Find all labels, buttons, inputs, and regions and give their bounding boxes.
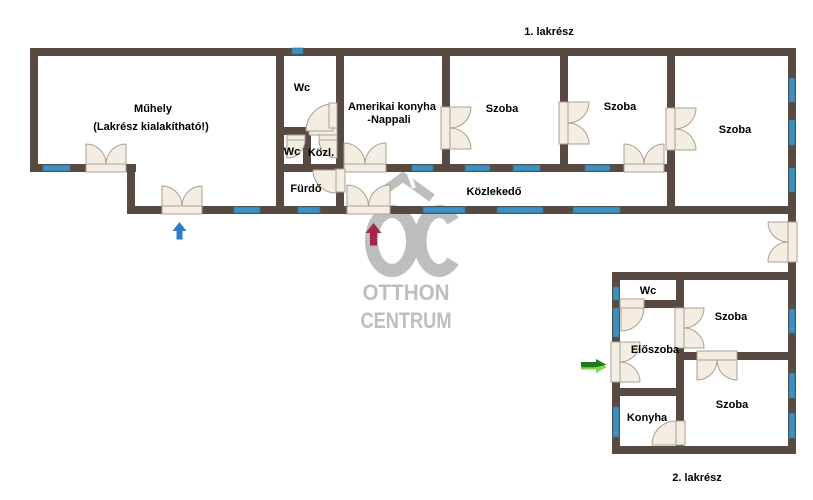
label-szoba1: Szoba [486, 103, 519, 115]
floor-plan-drawing: OTTHON CENTRUM [0, 0, 813, 500]
window-corridor-bottom-3 [573, 207, 620, 213]
door-szoba2-corridor [624, 144, 664, 172]
label2-szoba-bottom: Szoba [716, 399, 749, 411]
label-muhely: Műhely [134, 103, 173, 115]
window-corridor-bottom-2 [497, 207, 543, 213]
logo-letter-c [420, 212, 453, 271]
wall2-top [612, 272, 796, 280]
label2-szoba-top: Szoba [715, 311, 748, 323]
label-szoba3: Szoba [719, 124, 752, 136]
door-muhely-entrance [162, 186, 202, 214]
window-corridor-top-3 [513, 165, 540, 171]
entrance-arrow-blue-icon [173, 222, 187, 240]
door2-wc [620, 299, 644, 331]
door-konyha-szoba1 [441, 107, 471, 149]
door-szoba2-szoba3 [666, 108, 696, 150]
wall2-konyha-top [612, 388, 684, 396]
door-wc-top [306, 103, 337, 135]
floor-plan-page: OTTHON CENTRUM [0, 0, 813, 500]
window-top-wc [292, 48, 303, 54]
door2-eloszoba-szoba [675, 308, 704, 348]
logo-word-otthon: OTTHON [363, 280, 450, 305]
window2-left-konyha [613, 407, 619, 437]
label2-konyha: Konyha [627, 412, 668, 424]
unit2-label: 2. lakrész [672, 472, 722, 484]
window-corridor-top-1 [412, 165, 433, 171]
window2-right-szoba-top [789, 309, 795, 333]
label-amerikai-konyha: Amerikai konyha [348, 101, 437, 113]
door-main-entrance [347, 185, 390, 214]
window-szoba3-right-2 [789, 120, 795, 145]
label-nappali: -Nappali [367, 114, 410, 126]
door2-szoba-szoba [697, 351, 737, 380]
label-furdo: Fürdő [290, 183, 321, 195]
window-bottom-1 [234, 207, 260, 213]
window-bottom-furdo [298, 207, 320, 213]
door-szoba1-szoba2 [559, 102, 589, 144]
label-wc-small: Wc [284, 146, 301, 158]
logo-letter-o [372, 212, 413, 271]
label-kozlekedo: Közlekedő [466, 186, 521, 198]
wall-left [30, 48, 38, 172]
door-right-gate [768, 222, 797, 262]
window-corridor-bottom-1 [423, 207, 465, 213]
label-wc-top: Wc [294, 82, 311, 94]
window2-left-eloszoba [613, 308, 619, 337]
door-konyha-corridor [344, 143, 386, 172]
door-muhely-side [86, 144, 126, 172]
entrance-arrow-green-icon [581, 359, 607, 373]
label-kozl: Közl. [308, 147, 334, 159]
door2-konyha-szoba [652, 421, 685, 445]
window-muhely-left [43, 165, 70, 171]
wall2-bottom [612, 446, 796, 454]
window2-right-szoba-bottom-2 [789, 413, 795, 438]
window-szoba3-right-3 [789, 168, 795, 192]
label-muhely-note: (Lakrész kialakítható!) [93, 121, 209, 133]
window2-right-szoba-bottom-1 [789, 373, 795, 398]
wall-top [30, 48, 796, 56]
window-corridor-top-2 [465, 165, 490, 171]
label2-wc: Wc [640, 285, 657, 297]
window-corridor-top-4 [585, 165, 610, 171]
label2-eloszoba: Előszoba [631, 344, 680, 356]
logo-word-centrum: CENTRUM [361, 308, 452, 333]
window-szoba3-right-1 [789, 78, 795, 102]
label-szoba2: Szoba [604, 101, 637, 113]
unit1-label: 1. lakrész [524, 26, 574, 38]
window2-left-wc [613, 287, 619, 300]
